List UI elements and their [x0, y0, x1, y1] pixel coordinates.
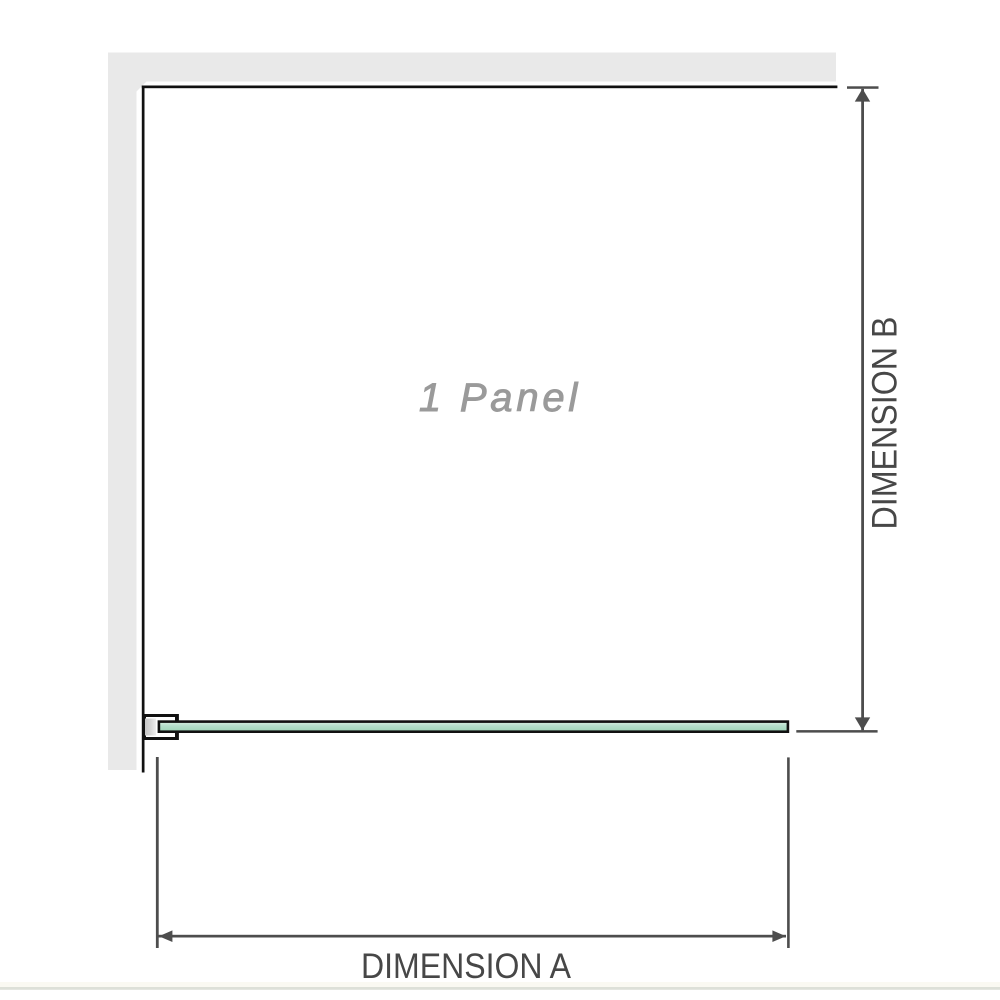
svg-text:DIMENSION A: DIMENSION A: [361, 947, 572, 986]
svg-text:1 Panel: 1 Panel: [419, 376, 581, 420]
svg-text:DIMENSION B: DIMENSION B: [866, 317, 905, 530]
